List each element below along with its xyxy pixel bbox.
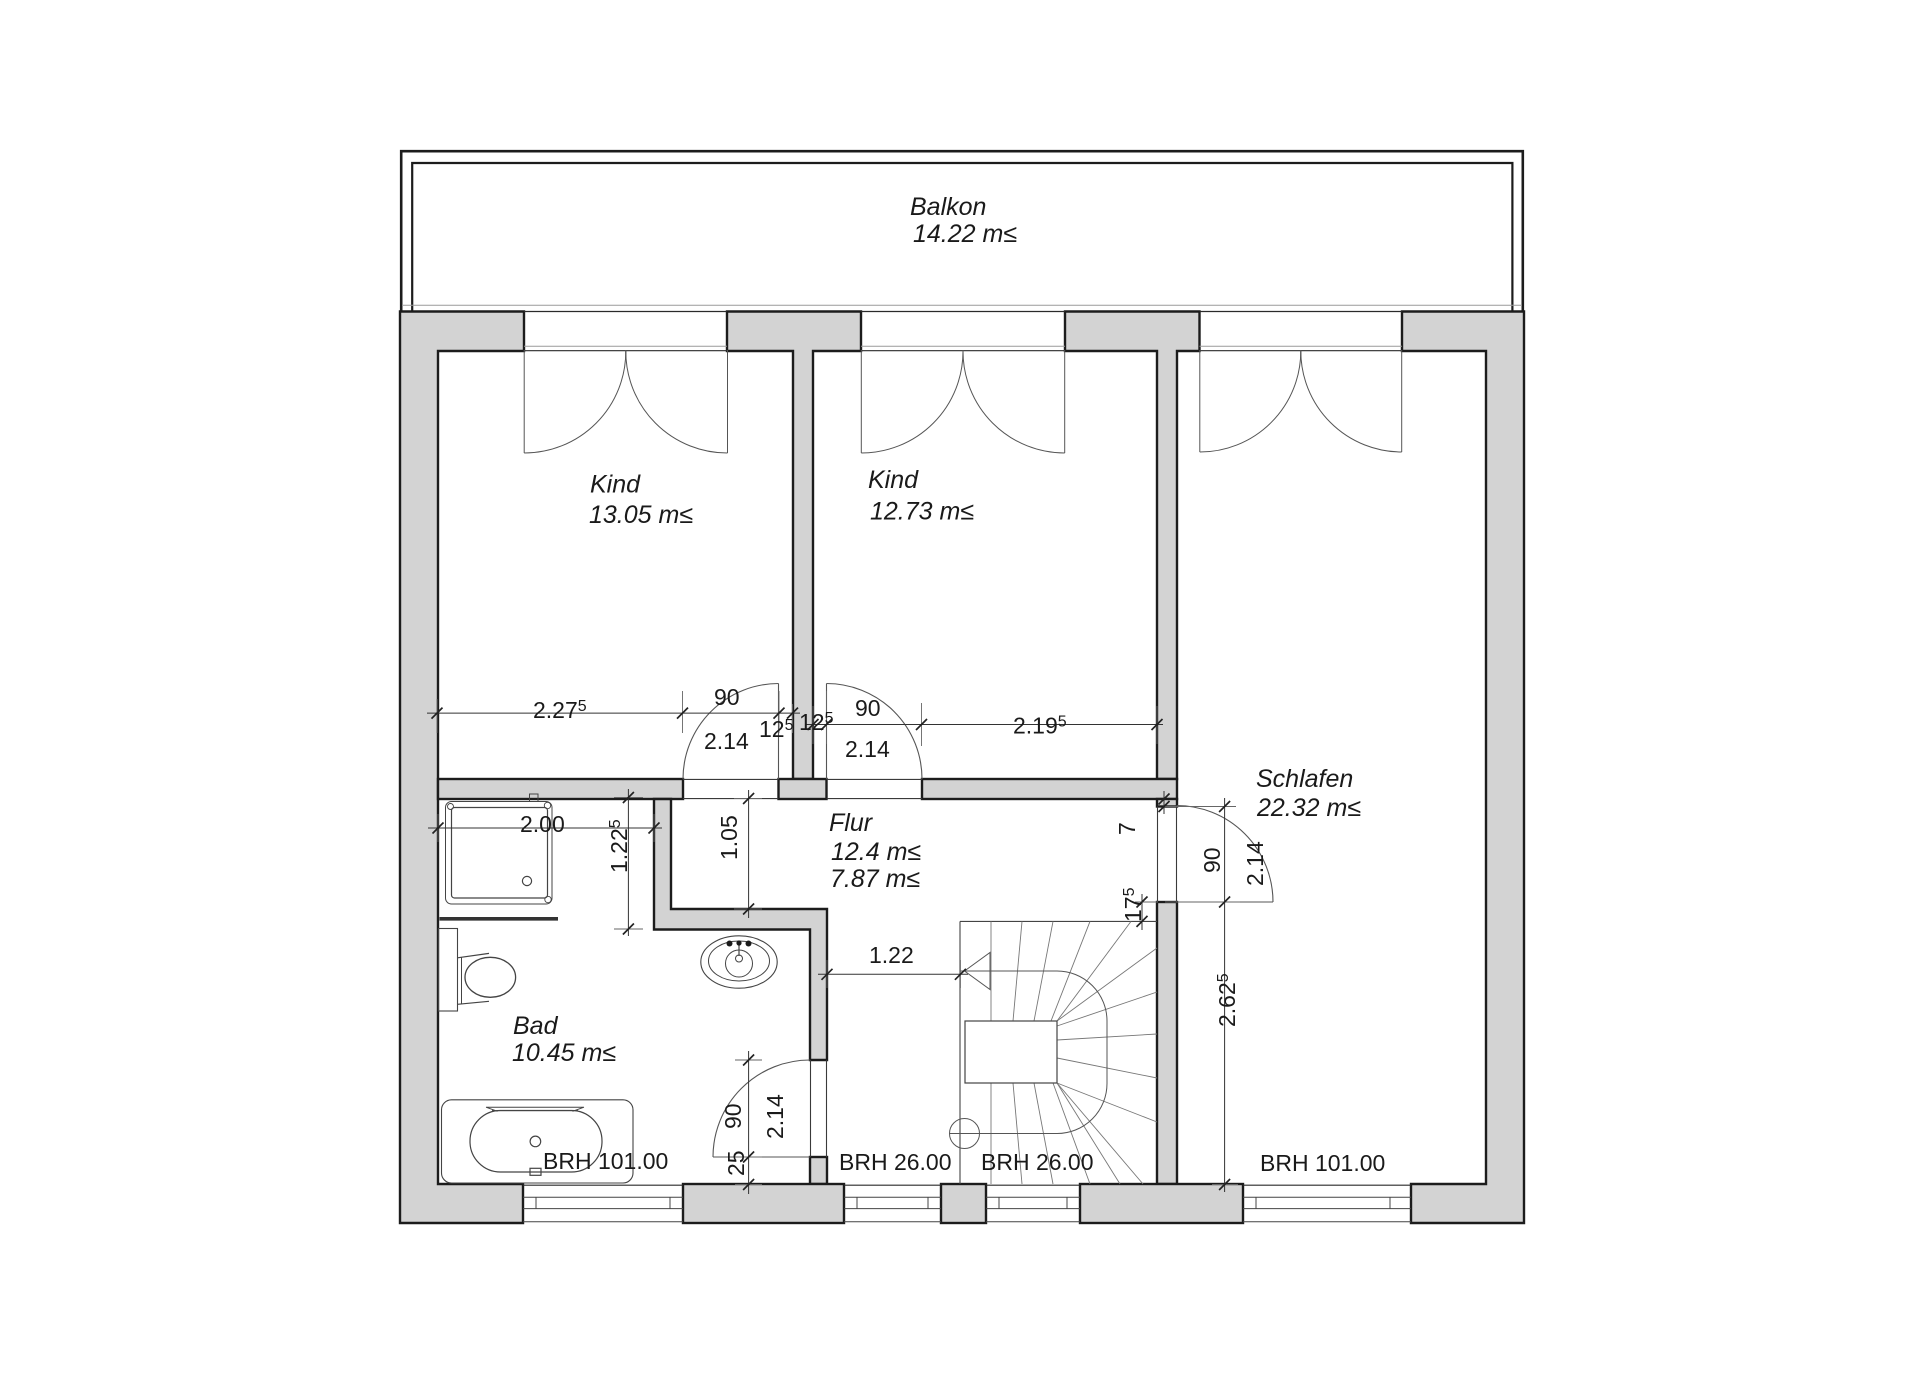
svg-text:12.73 m≤: 12.73 m≤	[870, 498, 974, 526]
svg-text:1.05: 1.05	[716, 815, 742, 860]
svg-text:Balkon: Balkon	[910, 193, 986, 221]
svg-text:25: 25	[723, 1150, 749, 1176]
svg-text:BRH 101.00: BRH 101.00	[543, 1148, 668, 1174]
svg-text:13.05 m≤: 13.05 m≤	[589, 501, 693, 529]
svg-text:2.00: 2.00	[520, 811, 565, 837]
svg-text:14.22 m≤: 14.22 m≤	[913, 220, 1017, 248]
svg-text:90: 90	[714, 684, 740, 710]
svg-text:2.14: 2.14	[1242, 841, 1268, 886]
svg-text:12.4 m≤: 12.4 m≤	[831, 838, 921, 866]
svg-text:Kind: Kind	[868, 466, 919, 494]
svg-text:BRH 26.00: BRH 26.00	[981, 1149, 1094, 1175]
svg-text:1.22: 1.22	[869, 942, 914, 968]
svg-text:10.45 m≤: 10.45 m≤	[512, 1039, 616, 1067]
svg-text:90: 90	[720, 1103, 746, 1129]
svg-text:2.14: 2.14	[845, 736, 890, 762]
svg-text:7: 7	[1114, 822, 1140, 835]
svg-text:90: 90	[1199, 847, 1225, 873]
svg-text:BRH 101.00: BRH 101.00	[1260, 1150, 1385, 1176]
svg-text:2.14: 2.14	[704, 728, 749, 754]
svg-text:2.14: 2.14	[762, 1094, 788, 1139]
svg-text:Bad: Bad	[513, 1012, 559, 1040]
svg-text:BRH 26.00: BRH 26.00	[839, 1149, 952, 1175]
svg-text:Schlafen: Schlafen	[1256, 765, 1353, 793]
svg-text:90: 90	[855, 695, 881, 721]
svg-text:Kind: Kind	[590, 471, 641, 499]
svg-text:Flur: Flur	[829, 809, 874, 837]
svg-text:7.87 m≤: 7.87 m≤	[830, 865, 920, 893]
svg-text:22.32 m≤: 22.32 m≤	[1256, 794, 1361, 822]
